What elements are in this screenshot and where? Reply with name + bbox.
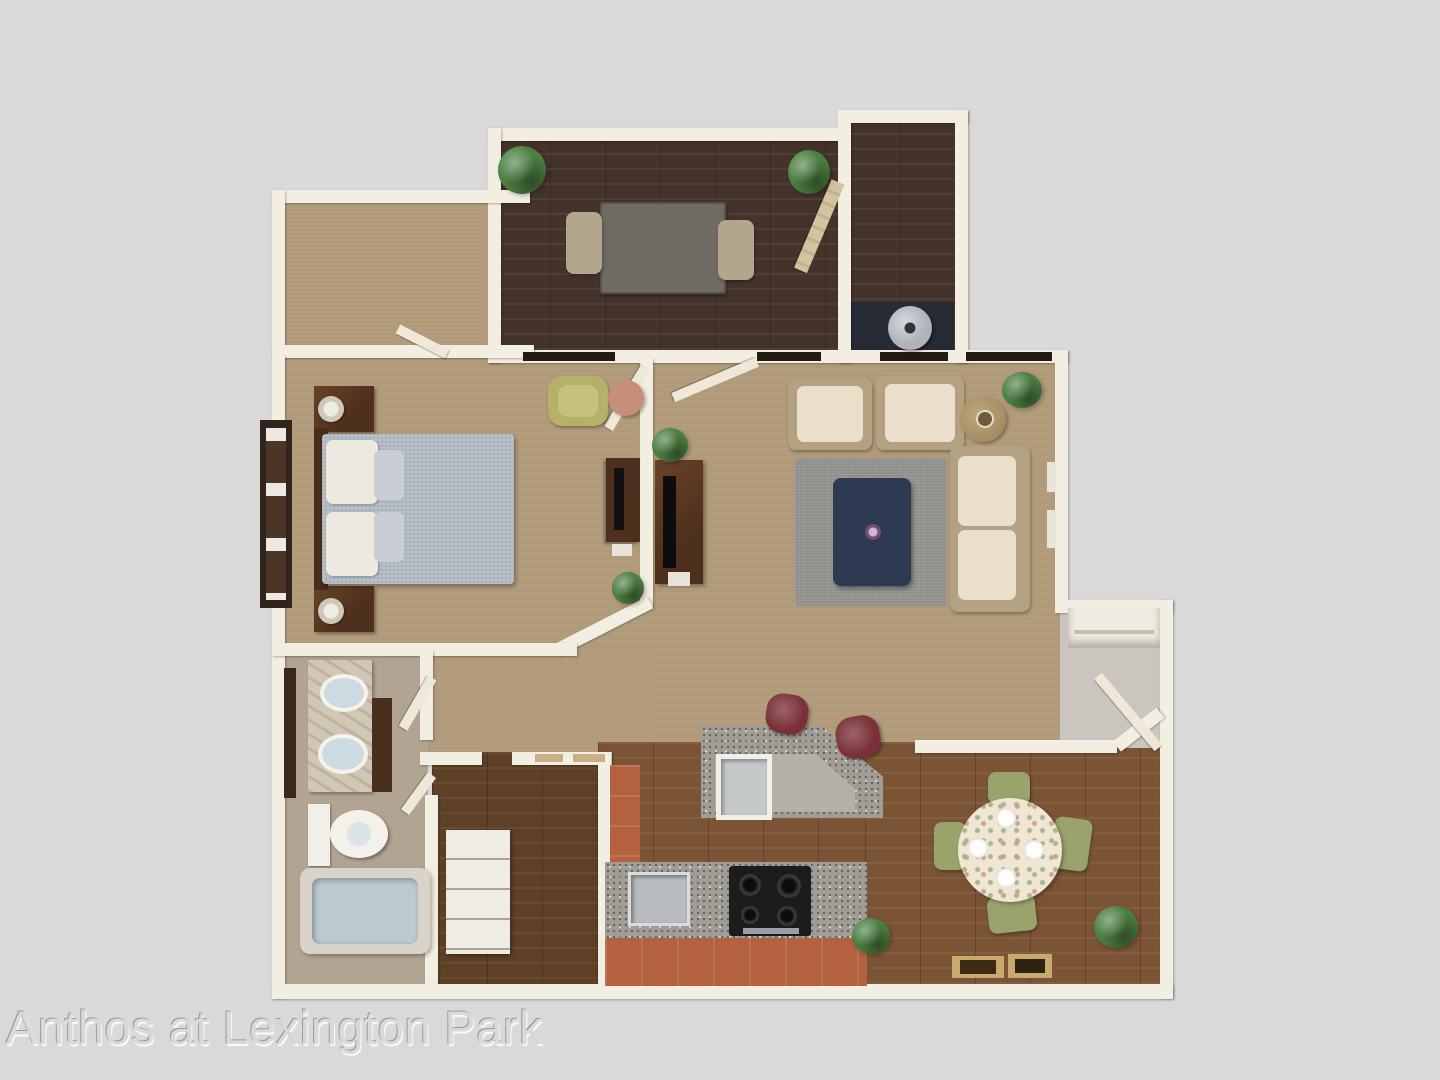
wall-outer-bottom [272, 984, 1173, 999]
entry-closet-shelf [1068, 608, 1160, 648]
place-setting-4 [996, 868, 1016, 888]
closet-threshold-2 [573, 754, 605, 762]
dining-door-mat-1 [952, 956, 1004, 978]
sofa-cushion-1 [958, 456, 1016, 526]
hall-plant-bottom [612, 572, 644, 604]
bed-pillow-1 [326, 440, 378, 504]
den-plant-right [788, 150, 830, 194]
utility-doorway-threshold [880, 352, 948, 361]
dining-plant [1094, 906, 1138, 948]
bathroom-cabinet [372, 698, 392, 792]
living-side-table [960, 396, 1006, 442]
bedroom-window [260, 420, 292, 608]
sofa-cushion-2 [958, 530, 1016, 600]
toilet-bowl [330, 810, 388, 858]
wall-outer-right-lower [1160, 600, 1173, 998]
den-plant-left [498, 146, 546, 194]
burner-2 [777, 874, 801, 898]
wall-outer-left-upper [272, 190, 285, 358]
bedroom-dresser-papers [612, 544, 632, 556]
hall-console-papers [668, 572, 690, 586]
burner-3 [741, 906, 759, 924]
mat-center [960, 960, 996, 974]
bed-accent-pillow-1 [374, 450, 404, 500]
bathtub [300, 868, 430, 954]
wall-dining-top [915, 740, 1117, 753]
place-setting-2 [968, 838, 988, 858]
wall-living-right [1055, 350, 1068, 608]
closet-dresser [446, 830, 510, 954]
closet-threshold-1 [535, 754, 563, 762]
wall-utility-top [838, 110, 968, 123]
ottoman-flowers [865, 524, 881, 540]
burner-1 [739, 874, 761, 896]
wall-walkin-closet-top [272, 190, 530, 203]
den-doorway-threshold-east [757, 352, 821, 361]
table-decor [976, 410, 994, 428]
bed-pillow-2 [326, 512, 378, 576]
hall-tv [663, 476, 676, 568]
living-sofa [950, 446, 1030, 612]
dining-door-mat-2 [1008, 954, 1052, 978]
kitchen-sink-lower [628, 872, 690, 926]
bedroom-side-table [608, 380, 644, 416]
den-chair-right [718, 220, 754, 280]
bathroom-mirror [284, 668, 296, 798]
window-blinds [266, 428, 286, 600]
wall-switch-2 [1047, 510, 1056, 548]
wall-closet-top-a [420, 752, 482, 765]
wall-switch-1 [1047, 462, 1056, 492]
bedroom-armchair [548, 376, 608, 426]
mat-center [1015, 959, 1045, 973]
kitchen-cabinet-bottom [605, 938, 867, 986]
wall-utility-left [838, 123, 851, 363]
armchair-cushion [558, 385, 598, 417]
den-chair-left [566, 212, 602, 274]
vanity-sink-1 [320, 674, 368, 712]
vanity-sink-2 [318, 734, 368, 774]
living-armchair-2 [876, 376, 964, 450]
armchair-cushion [797, 386, 863, 442]
cooktop-controls [743, 928, 799, 934]
peninsula-sink [716, 754, 772, 820]
kitchen-plant [852, 918, 890, 954]
bedroom-tv [614, 468, 624, 530]
wall-den-top [488, 128, 840, 141]
wall-utility-right [955, 110, 968, 363]
wall-closet-bedroom-divider [272, 345, 534, 358]
dining-table [958, 798, 1062, 902]
lamp-top [318, 396, 344, 422]
burner-4 [777, 906, 797, 926]
kitchen-cooktop [729, 866, 811, 936]
bathtub-basin [312, 878, 418, 944]
floor-plan: Anthos at Lexington Park [0, 0, 1440, 1080]
living-ottoman [833, 478, 911, 586]
den-doorway-threshold-west [523, 352, 615, 361]
water-heater [888, 306, 932, 350]
bed-accent-pillow-2 [374, 512, 404, 562]
living-window-threshold [966, 352, 1052, 361]
den-table [600, 202, 726, 294]
shelf-line [1074, 630, 1154, 634]
armchair-cushion [885, 384, 955, 442]
hallway-floor [425, 648, 650, 754]
toilet-tank [308, 804, 330, 866]
place-setting-1 [996, 808, 1016, 828]
lamp-bottom [318, 598, 344, 624]
watermark-text: Anthos at Lexington Park [6, 1000, 543, 1055]
place-setting-3 [1024, 840, 1044, 860]
hall-plant-top [652, 428, 688, 462]
living-armchair-1 [788, 378, 872, 450]
living-plant [1002, 372, 1042, 408]
